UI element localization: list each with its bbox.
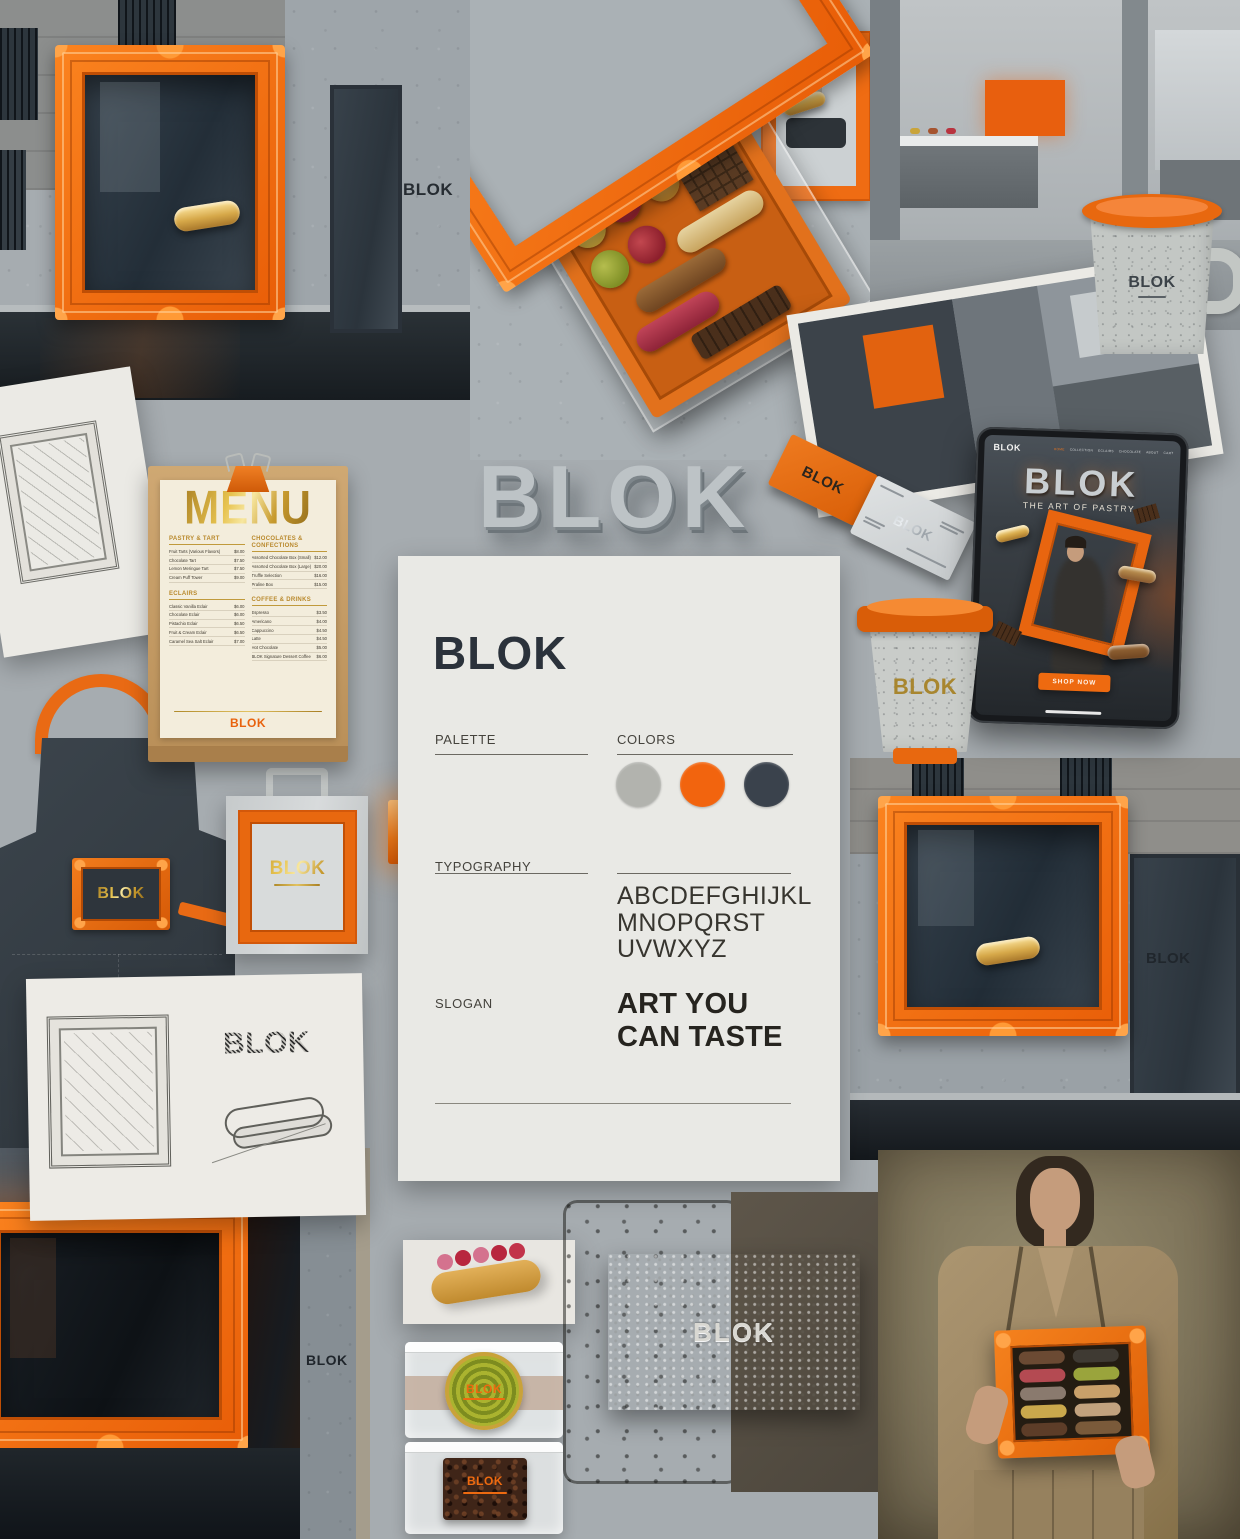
- menu-item: Americano$4.00: [252, 617, 328, 626]
- mug-tagline-line: [1138, 296, 1166, 298]
- shopping-bag: BLOK: [226, 768, 368, 954]
- pastry-in-case: [910, 128, 920, 134]
- blok-3d-wall-sign: BLOK: [478, 446, 751, 548]
- menu-left-column: PASTRY & TART Fruit Tarts (Various Flavo…: [169, 536, 245, 669]
- menu-item: Fruit & Cream Eclair$6.50: [169, 628, 245, 637]
- sketched-frame: [0, 420, 119, 584]
- menu-section: ECLAIRS Classic Vanilla Eclair$6.00Choco…: [169, 591, 245, 646]
- menu-item-price: $6.00: [234, 604, 244, 609]
- ornate-frame-window: [55, 45, 285, 320]
- raspberry-topping: [455, 1250, 471, 1266]
- boxed-eclair: [1021, 1422, 1067, 1437]
- photo-storefront-day-right: BLOK: [850, 758, 1240, 1160]
- apron-stitching: [12, 954, 222, 955]
- menu-item-price: $9.00: [234, 575, 244, 580]
- menu-item-name: Hot Chocolate: [252, 645, 315, 650]
- menu-item: Chocolate Eclair$6.00: [169, 611, 245, 620]
- slogan-line: CAN TASTE: [617, 1021, 783, 1054]
- boxed-eclair: [1019, 1350, 1065, 1365]
- wet-street-night: [0, 1448, 300, 1539]
- slogan-label: SLOGAN: [435, 996, 493, 1011]
- menu-item-price: $8.00: [234, 549, 244, 554]
- color-swatch-gray: [616, 762, 661, 807]
- menu-item: Hot Chocolate$5.00: [252, 644, 328, 653]
- raspberry-topping: [473, 1247, 489, 1263]
- sketch-card: BLOK: [26, 973, 366, 1221]
- parked-car: [786, 118, 846, 148]
- eclair-photo-card: [403, 1240, 575, 1324]
- window-reflection: [100, 82, 160, 192]
- palette-rule: [435, 754, 588, 755]
- palette-label: PALETTE: [435, 732, 496, 747]
- model-face: [1030, 1168, 1080, 1232]
- menu-section-items: Classic Vanilla Eclair$6.00Chocolate Ecl…: [169, 602, 245, 646]
- menu-clipboard: MENU PASTRY & TART Fruit Tarts (Various …: [148, 458, 348, 770]
- cup-base-ring: [893, 748, 957, 764]
- chocolate-brownie: [443, 1458, 527, 1520]
- tablet-nav-item[interactable]: CHOCOLATE: [1119, 449, 1141, 454]
- menu-item-name: Fruit & Cream Eclair: [169, 630, 232, 635]
- menu-item-price: $5.00: [317, 645, 327, 650]
- bag-body: BLOK: [226, 796, 368, 954]
- menu-item-name: Americano: [252, 619, 315, 624]
- mug-lid-top: [1096, 197, 1208, 217]
- storefront-blok-sign: BLOK: [403, 180, 453, 200]
- menu-item-price: $7.50: [234, 566, 244, 571]
- boxed-eclair: [1075, 1420, 1121, 1435]
- spiral-pastry-bag: BLOK: [405, 1342, 563, 1438]
- menu-right-column: CHOCOLATES & CONFECTIONS Assorted Chocol…: [252, 536, 328, 669]
- menu-item-name: Praline Box: [252, 582, 313, 587]
- embossed-card: BLOK: [608, 1254, 860, 1410]
- menu-item-name: Caramel Sea Salt Eclair: [169, 639, 232, 644]
- menu-item: Pistachio Eclair$6.50: [169, 620, 245, 629]
- menu-section: COFFEE & DRINKS Espresso$3.50Americano$4…: [252, 597, 328, 661]
- orange-accent-wall: [985, 80, 1065, 136]
- menu-section-items: Espresso$3.50Americano$4.00Cappuccino$4.…: [252, 609, 328, 662]
- boxed-eclair: [1019, 1368, 1065, 1383]
- spiral-bag-subline: [463, 1398, 505, 1400]
- apron-patch-logo: BLOK: [97, 885, 144, 903]
- shop-window: [904, 822, 1102, 1010]
- menu-item: Cappuccino$4.50: [252, 626, 328, 635]
- window-reflection: [10, 1238, 56, 1358]
- display-counter: [900, 146, 1038, 208]
- clipboard-ledge: [148, 746, 348, 762]
- bag-crimp-seal: [405, 1442, 563, 1453]
- menu-item-price: $15.00: [314, 582, 327, 587]
- menu-section: CHOCOLATES & CONFECTIONS Assorted Chocol…: [252, 536, 328, 589]
- eclair-box-interior: [1010, 1342, 1133, 1442]
- ornate-frame-window: [878, 796, 1128, 1036]
- menu-section-items: Fruit Tarts (Various Flavors)$8.00Chocol…: [169, 548, 245, 583]
- storefront-blok-sign: BLOK: [306, 1352, 348, 1368]
- menu-section-heading: ECLAIRS: [169, 591, 245, 600]
- pastry-in-case: [928, 128, 938, 134]
- shop-door[interactable]: [330, 85, 402, 333]
- menu-item-name: Latte: [252, 636, 315, 641]
- balcony-window: [0, 150, 26, 250]
- menu-item-name: Fruit Tarts (Various Flavors): [169, 549, 232, 554]
- menu-item: Chocolate Tart$7.50: [169, 556, 245, 565]
- balcony-window: [0, 28, 38, 120]
- bag-logo: BLOK: [240, 858, 355, 880]
- menu-item: Classic Vanilla Eclair$6.00: [169, 602, 245, 611]
- menu-item-price: $4.50: [317, 628, 327, 633]
- embossed-logo: BLOK: [693, 1317, 775, 1348]
- tablet-nav-item[interactable]: HOME: [1054, 447, 1065, 451]
- dark-shop-window: [0, 1230, 222, 1420]
- colors-rule: [617, 754, 793, 755]
- boxed-eclair: [1073, 1366, 1119, 1381]
- slogan-text: ART YOU CAN TASTE: [617, 988, 783, 1054]
- menu-item-name: Espresso: [252, 610, 315, 615]
- typography-rule-right: [617, 873, 791, 874]
- brand-guide-sheet: BLOK PALETTE COLORS TYPOGRAPHY ABCDEFGHI…: [398, 556, 840, 1181]
- menu-item-name: Chocolate Eclair: [169, 612, 232, 617]
- color-swatch-orange: [680, 762, 725, 807]
- menu-item-price: $20.00: [314, 564, 327, 569]
- menu-item-name: Assorted Chocolate Box (Large): [252, 564, 313, 569]
- pastry-in-case: [946, 128, 956, 134]
- menu-item: Assorted Chocolate Box (Small)$12.00: [252, 554, 328, 563]
- menu-item: Espresso$3.50: [252, 609, 328, 618]
- menu-section-heading: PASTRY & TART: [169, 536, 245, 545]
- spiral-bag-label: BLOK: [445, 1382, 523, 1396]
- menu-item-price: $6.00: [234, 612, 244, 617]
- tablet-screen: BLOK HOMECOLLECTIONECLAIRSCHOCOLATEABOUT…: [975, 435, 1181, 722]
- menu-item: Praline Box$15.00: [252, 580, 328, 589]
- shop-door[interactable]: [1130, 854, 1240, 1114]
- menu-footer-rule: [174, 711, 322, 712]
- alphabet-line: UVWXYZ: [617, 936, 812, 963]
- balcony-window: [1060, 758, 1112, 800]
- typography-rule: [435, 873, 588, 874]
- sketched-glass: [64, 1032, 154, 1152]
- menu-item-price: $6.00: [317, 654, 327, 659]
- menu-card: MENU PASTRY & TART Fruit Tarts (Various …: [160, 480, 336, 738]
- ornate-frame-window-night: [0, 1202, 250, 1448]
- menu-item-name: Assorted Chocolate Box (Small): [252, 555, 313, 560]
- brand-collage: BLOK: [0, 0, 1240, 1539]
- menu-item-price: $4.00: [317, 619, 327, 624]
- typography-label: TYPOGRAPHY: [435, 859, 531, 874]
- ceramic-mug: BLOK: [1076, 186, 1240, 366]
- brownie-bag: BLOK: [405, 1442, 563, 1534]
- shop-now-label: SHOP NOW: [1052, 678, 1096, 687]
- color-swatch-charcoal: [744, 762, 789, 807]
- menu-section: PASTRY & TART Fruit Tarts (Various Flavo…: [169, 536, 245, 583]
- bag-tagline-line: [274, 884, 320, 886]
- tablet-nav-item[interactable]: ABOUT: [1146, 450, 1159, 454]
- card-name-line: [880, 484, 904, 497]
- raspberry-topping: [436, 1253, 454, 1271]
- sketched-logo: BLOK: [223, 1026, 311, 1062]
- takeaway-cup: BLOK: [845, 596, 1005, 770]
- raspberry-topping: [491, 1245, 507, 1261]
- menu-item: Caramel Sea Salt Eclair$7.00: [169, 637, 245, 646]
- brand-sheet-logo: BLOK: [433, 626, 567, 680]
- menu-item: Fruit Tarts (Various Flavors)$8.00: [169, 548, 245, 557]
- patch-center: BLOK: [81, 867, 161, 921]
- menu-item: Truffle Selection$16.00: [252, 572, 328, 581]
- alphabet-line: ABCDEFGHIJKL: [617, 883, 812, 910]
- gold-eclair-display: [975, 935, 1042, 967]
- menu-item-price: $4.50: [317, 636, 327, 641]
- menu-section-heading: COFFEE & DRINKS: [252, 597, 328, 606]
- window-reflection: [918, 830, 974, 926]
- photo-storefront-day-left: BLOK: [0, 0, 470, 400]
- floating-eclair: [1107, 643, 1150, 660]
- shop-now-button[interactable]: SHOP NOW: [1038, 673, 1111, 693]
- menu-item-price: $12.00: [314, 555, 327, 560]
- menu-item-name: BLOK Signature Dessert Coffee: [252, 654, 315, 659]
- home-indicator[interactable]: [1045, 710, 1101, 715]
- menu-item-name: Classic Vanilla Eclair: [169, 604, 232, 609]
- sketched-glass: [14, 437, 102, 566]
- boxed-eclair: [1020, 1386, 1066, 1401]
- menu-item-name: Pistachio Eclair: [169, 621, 232, 626]
- menu-item: BLOK Signature Dessert Coffee$6.00: [252, 653, 328, 662]
- raspberry-topping: [509, 1243, 525, 1259]
- menu-item-price: $3.50: [317, 610, 327, 615]
- storefront-blok-sign: BLOK: [1146, 950, 1191, 967]
- cup-logo: BLOK: [867, 674, 983, 700]
- boxed-eclair: [1020, 1404, 1066, 1419]
- frame-sketch-paper: [0, 366, 172, 657]
- menu-item-name: Cream Puff Tower: [169, 575, 232, 580]
- alphabet-line: MNOPQRST: [617, 910, 812, 937]
- display-counter-top: [900, 136, 1038, 146]
- menu-item: Latte$4.50: [252, 635, 328, 644]
- tablet-site-logo: BLOK: [993, 442, 1021, 453]
- menu-item: Cream Puff Tower$9.00: [169, 574, 245, 583]
- floating-eclair: [995, 524, 1031, 544]
- apron-frame-patch: BLOK: [72, 858, 170, 930]
- menu-item-name: Cappuccino: [252, 628, 315, 633]
- photo-campaign-model: [878, 1150, 1240, 1539]
- menu-item: Lemon Meringue Tart$7.50: [169, 565, 245, 574]
- tablet-nav: HOMECOLLECTIONECLAIRSCHOCOLATEABOUTCART: [1054, 447, 1174, 455]
- tablet-nav-item[interactable]: COLLECTION: [1070, 448, 1094, 453]
- colors-label: COLORS: [617, 732, 676, 747]
- brownie-bag-subline: [463, 1492, 507, 1494]
- sketched-frame: [47, 1014, 172, 1168]
- menu-footer-logo: BLOK: [160, 716, 336, 730]
- menu-section-heading: CHOCOLATES & CONFECTIONS: [252, 536, 328, 552]
- menu-item-price: $7.50: [234, 558, 244, 563]
- cup-lid-top: [867, 598, 983, 616]
- gold-eclair-display: [173, 199, 242, 233]
- menu-item: Assorted Chocolate Box (Large)$20.00: [252, 563, 328, 572]
- business-card-orange-logo: BLOK: [799, 463, 846, 498]
- boxed-eclair: [1073, 1348, 1119, 1363]
- menu-section-items: Assorted Chocolate Box (Small)$12.00Asso…: [252, 554, 328, 589]
- menu-item-price: $6.50: [234, 630, 244, 635]
- menu-item-name: Chocolate Tart: [169, 558, 232, 563]
- menu-item-price: $7.00: [234, 639, 244, 644]
- sheet-bottom-rule: [435, 1103, 791, 1104]
- tablet-nav-item[interactable]: ECLAIRS: [1098, 449, 1114, 454]
- interior-window: [1155, 30, 1240, 170]
- model-trousers: [974, 1470, 1144, 1539]
- menu-item-name: Truffle Selection: [252, 573, 313, 578]
- alphabet-specimen: ABCDEFGHIJKL MNOPQRST UVWXYZ: [617, 883, 812, 963]
- shop-window: [82, 72, 258, 293]
- menu-item-price: $16.00: [314, 573, 327, 578]
- slogan-line: ART YOU: [617, 988, 783, 1021]
- orange-panel: [863, 325, 944, 409]
- boxed-eclair: [1074, 1384, 1120, 1399]
- menu-item-name: Lemon Meringue Tart: [169, 566, 232, 571]
- boxed-eclair: [1074, 1402, 1120, 1417]
- tablet-nav-item[interactable]: CART: [1164, 451, 1174, 455]
- mug-blok-logo: BLOK: [1076, 274, 1228, 292]
- embossed-card-scene: BLOK: [563, 1192, 895, 1492]
- brownie-bag-label: BLOK: [443, 1474, 527, 1488]
- menu-item-price: $6.50: [234, 621, 244, 626]
